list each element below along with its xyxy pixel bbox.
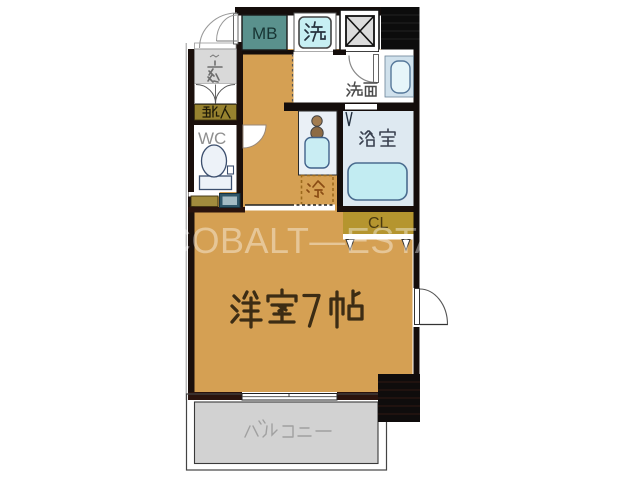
svg-text:MB: MB bbox=[252, 24, 278, 43]
svg-text:COBALT—ESTATE: COBALT—ESTATE bbox=[165, 220, 484, 261]
